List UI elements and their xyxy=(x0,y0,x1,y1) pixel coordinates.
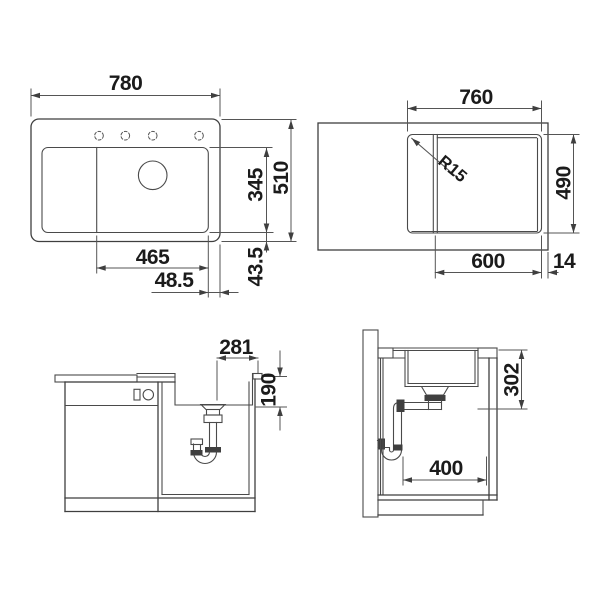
dim-label-345: 345 xyxy=(245,167,268,201)
waste-trap-side xyxy=(378,387,449,461)
dim-label-r15: R15 xyxy=(434,151,470,186)
corner-radius-callout: R15 xyxy=(412,138,471,186)
dim-label-600: 600 xyxy=(471,250,505,273)
worktop-cutout-view: R15 760 490 xyxy=(318,86,579,278)
dim-install-depth: 302 xyxy=(478,350,527,409)
tap-holes xyxy=(95,131,204,140)
sink-top-view: 780 510 345 43.5 46 xyxy=(31,72,296,297)
bowl-section-side xyxy=(405,351,478,387)
knob-symbol xyxy=(143,390,153,400)
dim-label-302: 302 xyxy=(501,363,524,397)
dim-label-490: 490 xyxy=(553,166,576,200)
sink-outline xyxy=(31,119,220,242)
drain-hole xyxy=(138,161,167,190)
dim-cutout-width: 760 xyxy=(408,86,542,131)
front-section-view: 281 190 xyxy=(55,336,287,512)
dim-label-190: 190 xyxy=(258,373,281,407)
dim-label-14: 14 xyxy=(553,250,576,273)
dim-label-465: 465 xyxy=(136,246,170,269)
dim-label-780: 780 xyxy=(109,72,143,95)
worktop-hatch-left xyxy=(55,375,137,382)
bowl-outline xyxy=(42,148,208,233)
dim-label-48-5: 48.5 xyxy=(155,269,195,292)
waste-trap xyxy=(191,405,226,464)
dim-label-510: 510 xyxy=(270,161,293,195)
dim-section-width: 600 14 xyxy=(435,236,576,278)
dim-cutout-depth: 490 xyxy=(544,135,579,234)
dim-bowl-inner-depth: 190 xyxy=(255,351,287,430)
dim-base-width: 400 xyxy=(403,457,487,485)
dim-label-400: 400 xyxy=(429,457,463,480)
sink-technical-drawing: 780 510 345 43.5 46 xyxy=(0,0,600,600)
side-section-view: 302 400 xyxy=(363,330,527,517)
dim-label-760: 760 xyxy=(459,86,493,109)
handle-symbol xyxy=(134,389,140,400)
dim-drain-offset: 281 xyxy=(217,336,258,400)
dim-overall-width: 780 xyxy=(31,72,220,116)
worktop-hatch-back xyxy=(378,348,393,358)
drawing-canvas: 780 510 345 43.5 46 xyxy=(0,0,600,600)
dim-label-43-5: 43.5 xyxy=(245,247,268,287)
wall-hatch xyxy=(363,330,378,517)
dim-label-281: 281 xyxy=(219,336,253,359)
cutout-outline xyxy=(408,135,542,234)
bowl-section xyxy=(175,374,253,406)
worktop-hatch-front xyxy=(478,348,497,358)
